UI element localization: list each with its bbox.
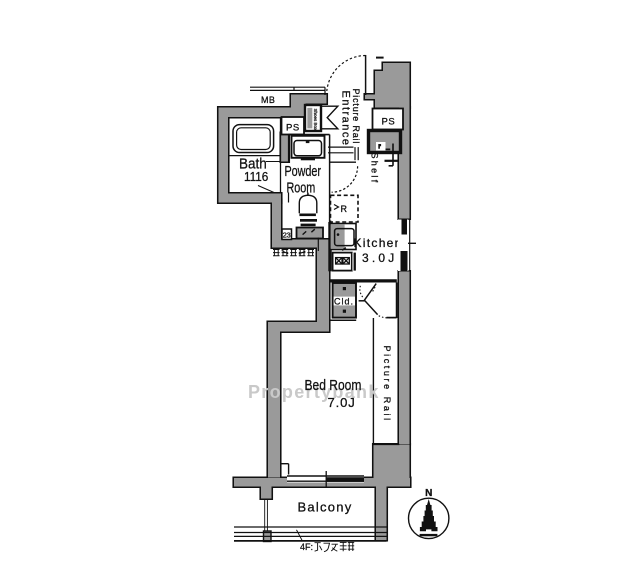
svg-text:Picture Rail: Picture Rail [351, 89, 361, 145]
svg-text:MB: MB [261, 95, 275, 105]
svg-text:Kitchen: Kitchen [354, 236, 403, 250]
svg-text:Shoes Box: Shoes Box [313, 109, 318, 132]
svg-text:1116: 1116 [244, 169, 268, 184]
svg-text:Room: Room [286, 179, 315, 196]
svg-text:PS: PS [382, 116, 396, 127]
svg-text:Entrance: Entrance [340, 91, 352, 147]
svg-text:PS: PS [286, 123, 300, 134]
svg-text:4F:: 4F: [300, 542, 313, 552]
svg-text:Powder: Powder [284, 162, 321, 179]
svg-text:Cld.: Cld. [334, 296, 354, 306]
svg-text:Picture Rail: Picture Rail [382, 346, 392, 423]
svg-text:7.0J: 7.0J [328, 395, 356, 410]
svg-text:Shelf: Shelf [370, 153, 380, 185]
svg-text:23: 23 [283, 231, 291, 240]
svg-text:Balcony: Balcony [298, 500, 353, 515]
svg-text:3.0J: 3.0J [362, 251, 397, 265]
svg-text:R: R [341, 204, 348, 214]
svg-text:N: N [425, 488, 432, 499]
svg-text:Bed Room: Bed Room [305, 377, 362, 393]
